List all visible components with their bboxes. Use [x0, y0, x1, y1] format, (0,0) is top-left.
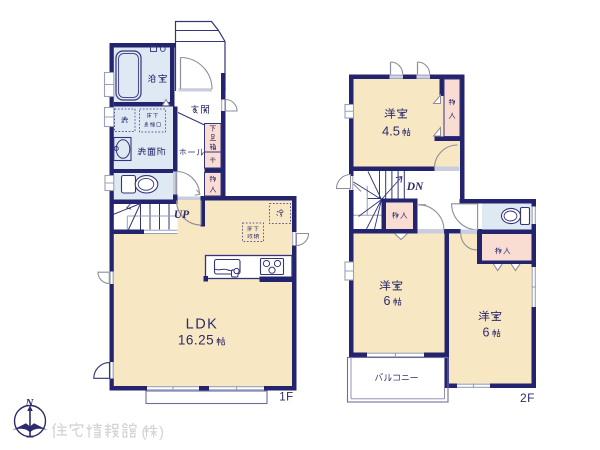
svg-text:1F: 1F [279, 392, 293, 404]
svg-text:2F: 2F [520, 391, 535, 405]
svg-text:DN: DN [406, 181, 424, 193]
svg-text:16.25: 16.25 [178, 333, 214, 348]
svg-text:LDK: LDK [186, 316, 219, 332]
svg-text:UP: UP [174, 209, 190, 221]
svg-text:N: N [25, 397, 35, 409]
svg-text:6: 6 [483, 325, 490, 339]
svg-text:): ) [159, 424, 164, 441]
svg-text:(: ( [142, 424, 147, 441]
svg-text:4.5: 4.5 [382, 123, 400, 138]
svg-text:6: 6 [384, 294, 391, 308]
